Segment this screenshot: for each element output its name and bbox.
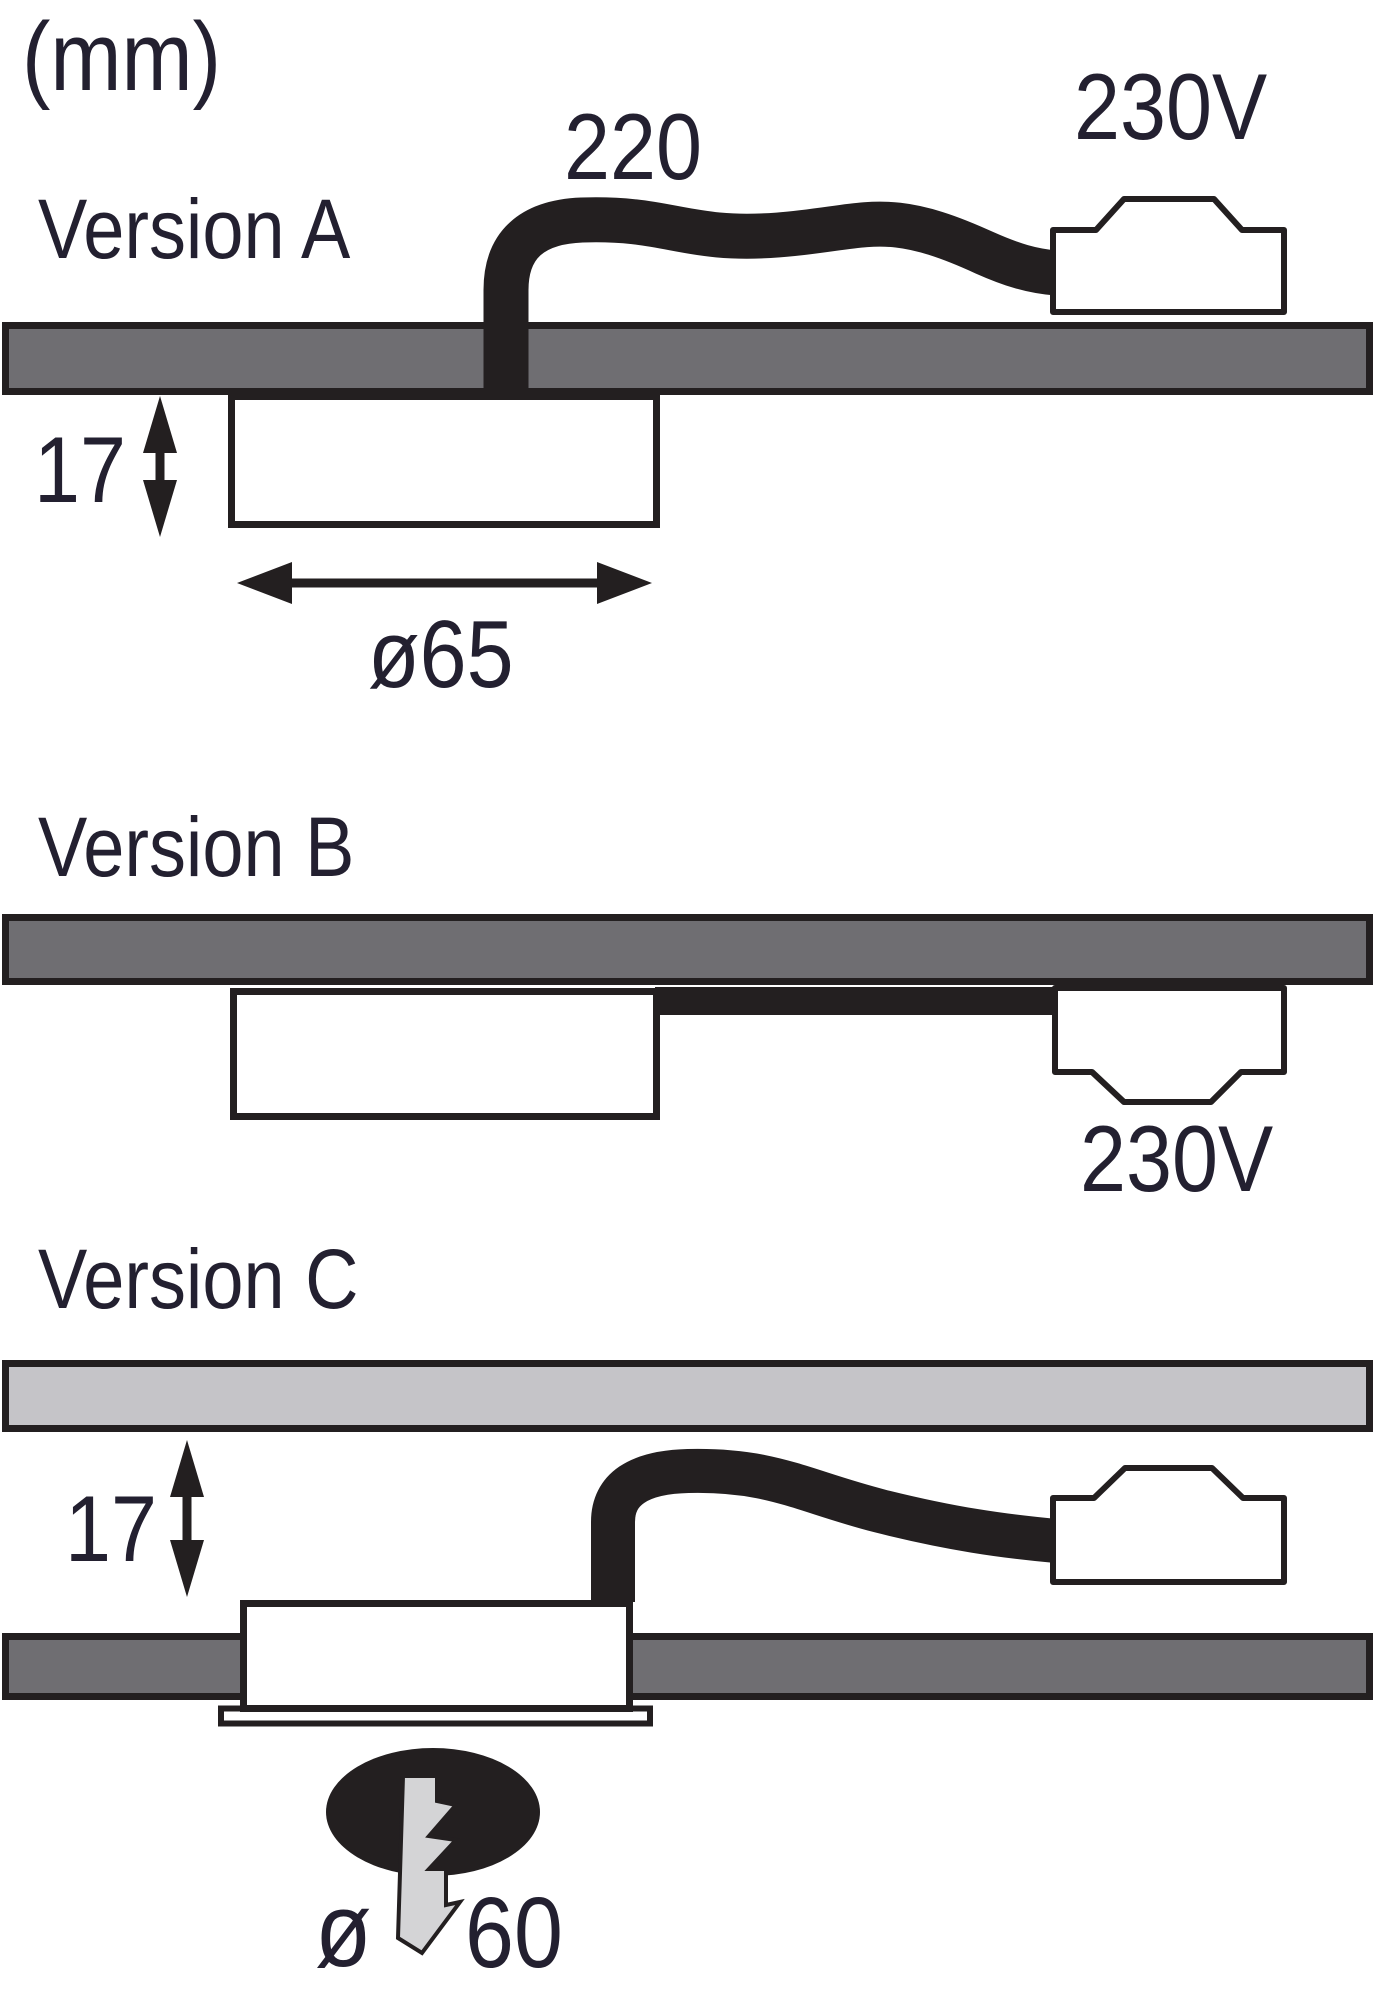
mount-depth-label-a: 17 xyxy=(34,423,126,517)
lamp-housing-b xyxy=(234,992,657,1117)
power-cable-b xyxy=(655,987,1057,1015)
diameter-arrow-a xyxy=(237,562,652,604)
clearance-label-c: 17 xyxy=(65,1482,157,1576)
power-plug-a xyxy=(1053,199,1284,312)
furniture-panel-c xyxy=(6,1637,1370,1697)
furniture-panel-a xyxy=(6,326,1370,392)
installation-dimensions-diagram: (mm) Version A 220 230V 17 ø65 Version B… xyxy=(0,0,1380,2000)
power-plug-b xyxy=(1055,988,1284,1102)
lamp-housing-a xyxy=(232,397,657,525)
voltage-label-b: 230V xyxy=(1080,1112,1273,1206)
power-cable-c xyxy=(613,1471,1056,1602)
version-b-title: Version B xyxy=(38,805,354,889)
diameter-label-a: ø65 xyxy=(368,607,514,703)
height-arrow-a xyxy=(143,396,177,537)
shelf-panel-c xyxy=(6,1364,1370,1429)
power-plug-c xyxy=(1053,1468,1284,1582)
furniture-panel-b xyxy=(6,918,1370,982)
diameter-value-c: 60 xyxy=(465,1883,563,1983)
diagram-artwork xyxy=(0,0,1380,2000)
diameter-symbol-c: ø xyxy=(315,1878,371,1983)
unit-label: (mm) xyxy=(22,8,221,105)
version-c-title: Version C xyxy=(38,1237,358,1321)
version-a-title: Version A xyxy=(38,187,350,271)
clearance-arrow-c xyxy=(170,1440,204,1597)
voltage-label-a: 230V xyxy=(1074,60,1267,154)
lamp-housing-c xyxy=(244,1604,630,1709)
cable-length-label-a: 220 xyxy=(564,100,702,194)
